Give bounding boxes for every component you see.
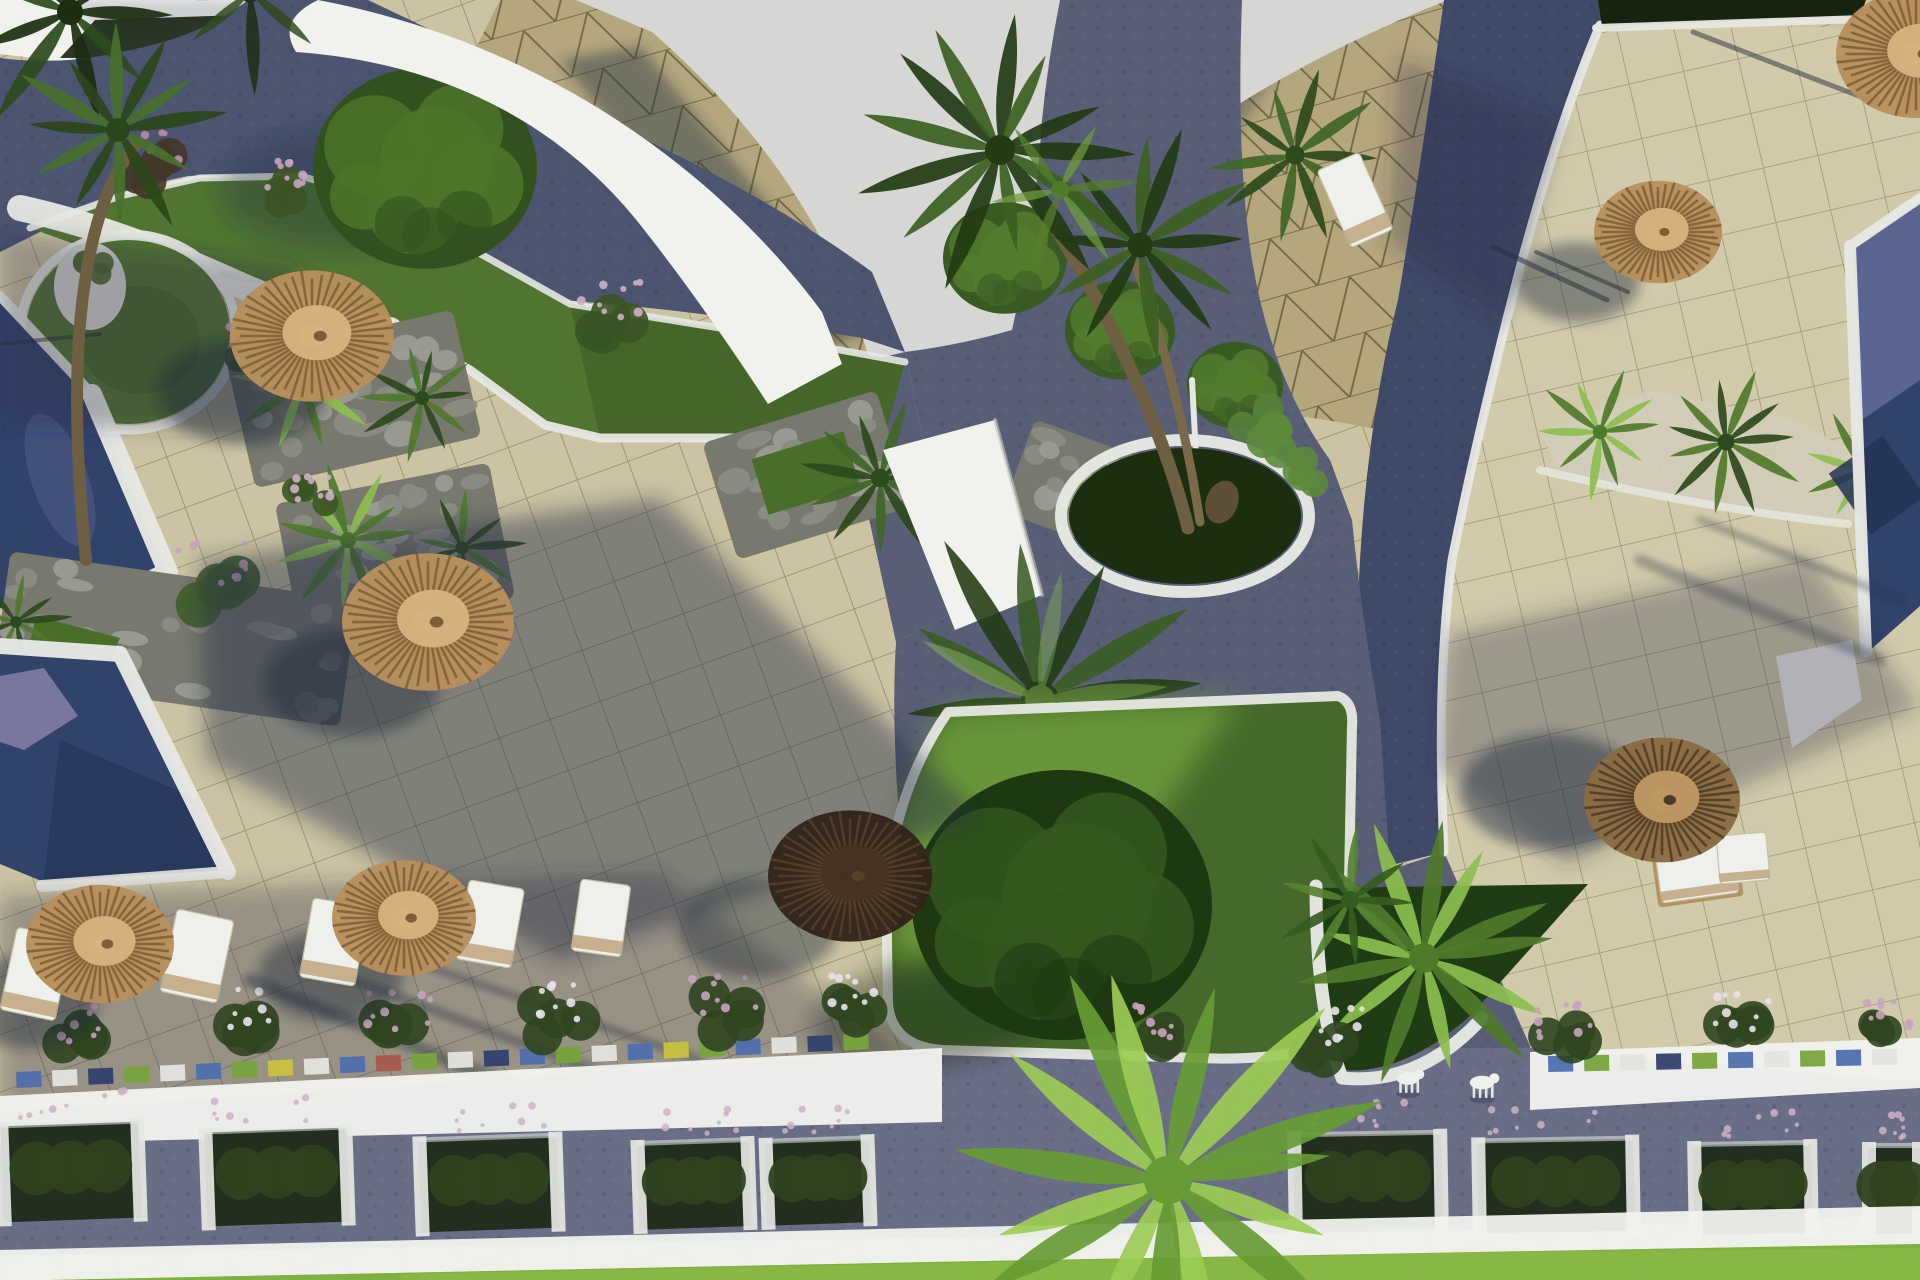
resort-aerial-render	[0, 0, 1920, 1280]
umbrella-1	[230, 270, 394, 401]
lounger-5	[571, 879, 631, 957]
umbrella-4	[332, 860, 476, 975]
scene-svg	[0, 0, 1920, 1280]
umbrella-2	[342, 553, 514, 691]
umbrella-3	[26, 885, 174, 1003]
umbrella-right-mid	[1584, 738, 1740, 863]
umbrella-dark	[768, 810, 932, 941]
lounger-right-2	[1716, 832, 1770, 884]
umbrella-right-top	[1594, 181, 1722, 283]
